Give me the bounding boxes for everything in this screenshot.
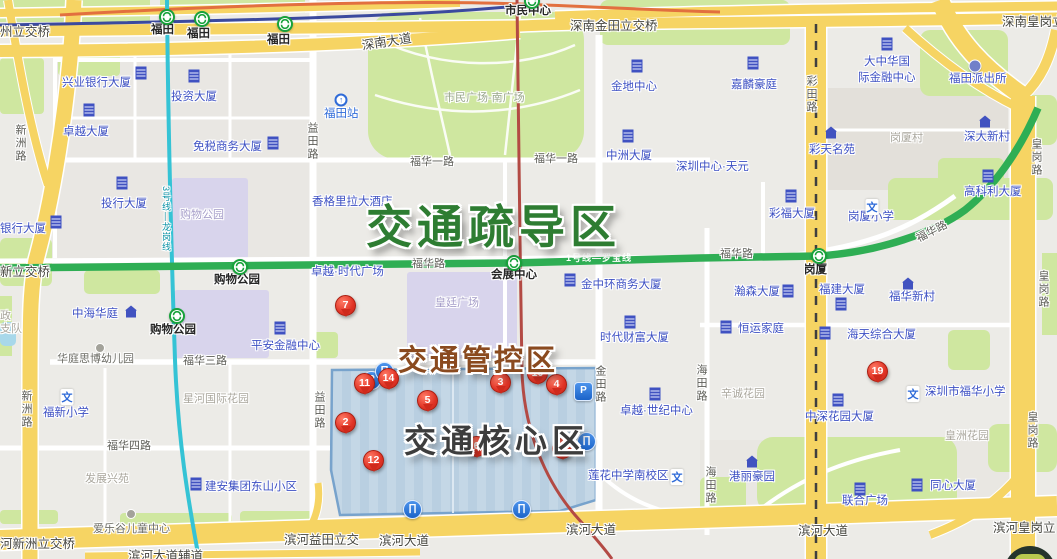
marker-pin-7[interactable]: 7 <box>335 295 356 316</box>
marker-pin-12[interactable]: 12 <box>363 450 384 471</box>
marker-pin-11[interactable]: 11 <box>354 373 375 394</box>
marker-pin-14[interactable]: 14 <box>378 368 399 389</box>
zone-title-dispersal: 交通疏导区 <box>366 204 621 250</box>
map-canvas[interactable]: 州立交桥深南金田立交桥深南皇岗立新立交桥河新洲立交桥滨河益田立交滨河皇岗立滨河大… <box>0 0 1057 559</box>
zone-title-core: 交通核心区 <box>404 425 589 457</box>
marker-pin-4[interactable]: 4 <box>546 374 567 395</box>
marker-pin-19[interactable]: 19 <box>867 361 888 382</box>
marker-pin-5[interactable]: 5 <box>417 390 438 411</box>
zone-title-control: 交通管控区 <box>398 347 558 376</box>
marker-pin-2[interactable]: 2 <box>335 412 356 433</box>
